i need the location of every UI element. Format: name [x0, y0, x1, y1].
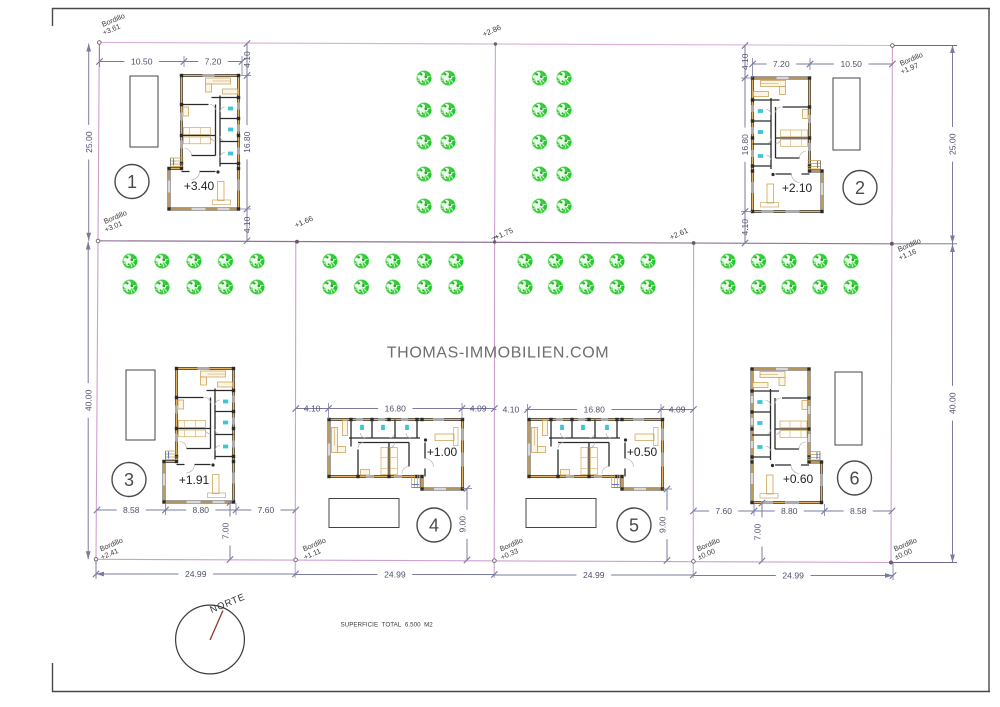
svg-text:4.10: 4.10	[242, 51, 252, 68]
svg-text:40.00: 40.00	[83, 389, 93, 411]
svg-text:+0.50: +0.50	[627, 445, 658, 459]
svg-text:16.80: 16.80	[740, 134, 750, 156]
svg-text:8.80: 8.80	[781, 506, 798, 516]
svg-text:4.10: 4.10	[242, 216, 252, 233]
svg-text:2: 2	[855, 178, 865, 198]
svg-text:9.00: 9.00	[458, 516, 468, 533]
svg-text:10.50: 10.50	[131, 57, 153, 67]
svg-text:10.50: 10.50	[840, 59, 862, 69]
svg-text:5: 5	[629, 515, 639, 535]
svg-text:24.99: 24.99	[384, 570, 406, 580]
svg-text:8.80: 8.80	[192, 505, 209, 515]
svg-text:+3.40: +3.40	[184, 179, 215, 193]
svg-text:7.00: 7.00	[753, 523, 763, 540]
svg-text:16.80: 16.80	[385, 404, 407, 414]
svg-text:1: 1	[127, 172, 137, 192]
svg-text:24.99: 24.99	[782, 571, 804, 581]
svg-text:+1.00: +1.00	[427, 445, 458, 459]
svg-text:24.99: 24.99	[185, 569, 207, 579]
svg-text:7.60: 7.60	[715, 506, 732, 516]
svg-text:6: 6	[849, 468, 859, 488]
svg-text:3: 3	[124, 470, 134, 490]
svg-text:7.00: 7.00	[221, 522, 231, 539]
svg-text:+2.10: +2.10	[782, 181, 813, 195]
svg-text:16.80: 16.80	[242, 131, 252, 153]
svg-text:8.58: 8.58	[850, 506, 867, 516]
svg-text:7.60: 7.60	[258, 505, 275, 515]
svg-text:8.58: 8.58	[123, 505, 140, 515]
svg-text:7.20: 7.20	[205, 57, 222, 67]
svg-text:16.80: 16.80	[584, 405, 606, 415]
svg-text:THOMAS-IMMOBILIEN.COM: THOMAS-IMMOBILIEN.COM	[387, 345, 609, 362]
svg-text:4: 4	[429, 515, 439, 535]
svg-text:24.99: 24.99	[583, 570, 605, 580]
svg-text:25.00: 25.00	[84, 131, 94, 153]
svg-text:9.00: 9.00	[658, 516, 668, 533]
svg-text:4.09: 4.09	[669, 405, 686, 415]
svg-text:4.10: 4.10	[503, 405, 520, 415]
svg-text:25.00: 25.00	[948, 133, 958, 155]
svg-text:4.09: 4.09	[470, 404, 487, 414]
svg-text:4.10: 4.10	[740, 53, 750, 70]
svg-text:4.10: 4.10	[740, 219, 750, 236]
svg-text:7.20: 7.20	[773, 59, 790, 69]
svg-text:40.00: 40.00	[948, 392, 958, 414]
svg-text:+0.60: +0.60	[783, 472, 814, 486]
svg-text:+1.91: +1.91	[179, 473, 210, 487]
svg-text:SUPERFICIE TOTAL 6.500 M2: SUPERFICIE TOTAL 6.500 M2	[341, 622, 434, 629]
svg-text:4.10: 4.10	[304, 404, 321, 414]
